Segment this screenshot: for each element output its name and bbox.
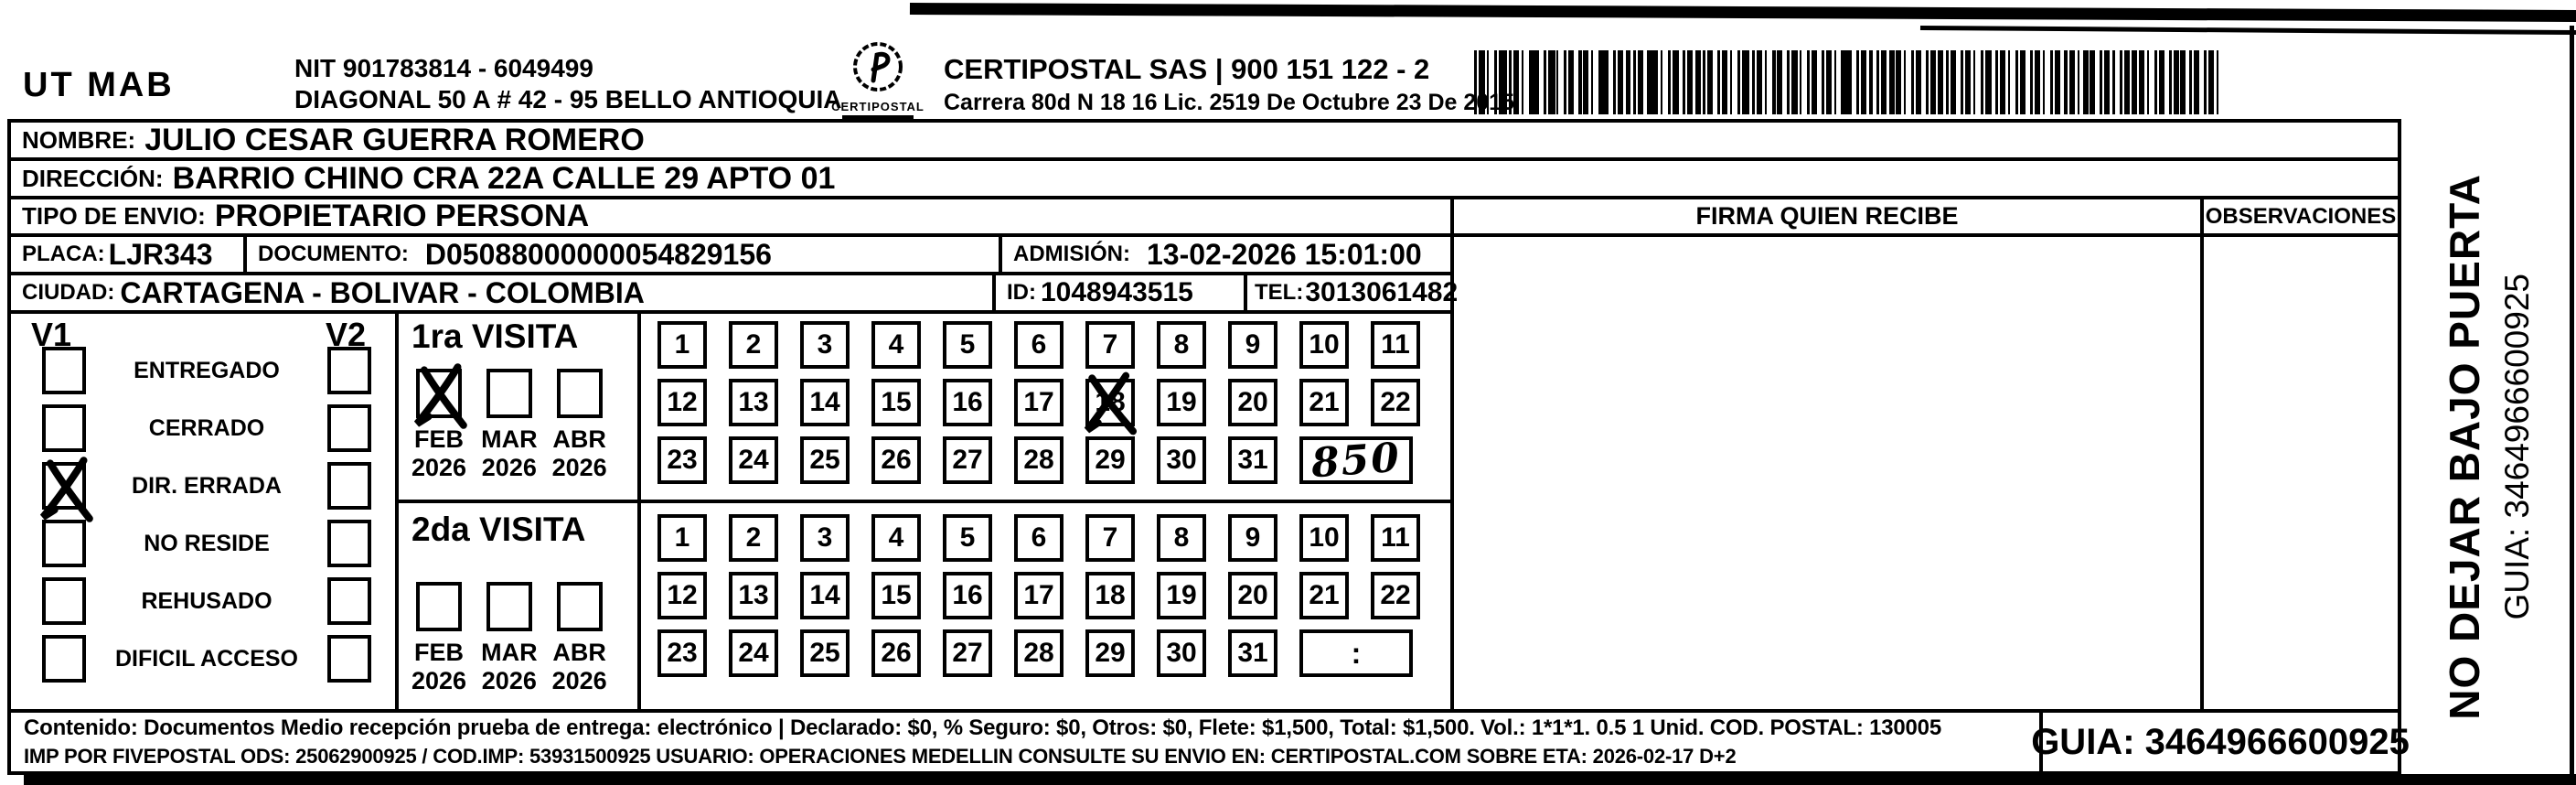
visit1-day-29[interactable]: 29: [1085, 436, 1135, 484]
visit1-note-box[interactable]: 850: [1299, 436, 1413, 484]
status-row-entregado: ENTREGADO: [11, 347, 395, 394]
month-year: 2026: [482, 667, 537, 695]
handwritten-x-icon: [1082, 373, 1138, 434]
month-year: 2026: [412, 667, 466, 695]
day-number: 22: [1380, 580, 1410, 611]
visit2-day-4[interactable]: 4: [871, 514, 921, 562]
visit1-day-16[interactable]: 16: [943, 379, 992, 426]
visit1-checkbox-feb[interactable]: [416, 369, 462, 418]
day-number: 2: [746, 329, 762, 360]
handwritten-note: 850: [1309, 434, 1402, 487]
status-options: ENTREGADOCERRADODIR. ERRADANO RESIDEREHU…: [11, 347, 395, 693]
v1-checkbox-no-reside[interactable]: [42, 520, 86, 567]
certipostal-logo-icon: [848, 40, 908, 97]
status-option-label: DIFICIL ACCESO: [86, 646, 327, 672]
day-number: 27: [952, 638, 982, 669]
sender-address: DIAGONAL 50 A # 42 - 95 BELLO ANTIOQUIA: [294, 84, 841, 115]
company-name: CERTIPOSTAL SAS | 900 151 122 - 2: [944, 53, 1514, 86]
admision-value: 13-02-2026 15:01:00: [1147, 238, 1422, 272]
visit2-day-9[interactable]: 9: [1228, 514, 1277, 562]
visit2-day-panel: 1234567891011121314151617181920212223242…: [637, 500, 1454, 713]
day-number: 20: [1237, 580, 1267, 611]
v1-checkbox-cerrado[interactable]: [42, 404, 86, 452]
day-number: 27: [952, 445, 982, 476]
v1-checkbox-dificil-acceso[interactable]: [42, 635, 86, 683]
scan-artifact-bottom: [24, 774, 2576, 785]
visit1-checkbox-mar[interactable]: [486, 369, 532, 418]
nit-line: NIT 901783814 - 6049499: [294, 53, 841, 84]
documento-value: D05088000000054829156: [425, 238, 772, 272]
day-number: 4: [889, 522, 904, 554]
placa-label: PLACA:: [22, 242, 105, 267]
day-number: 1: [675, 329, 690, 360]
visit2-day-3[interactable]: 3: [800, 514, 850, 562]
day-number: 20: [1237, 387, 1267, 418]
visit2-day-19[interactable]: 19: [1157, 572, 1206, 619]
guia-box: GUIA: 3464966600925: [2039, 709, 2401, 775]
visit1-day-grid: 1234567891011121314151617181920212223242…: [657, 321, 1420, 494]
visit1-day-4[interactable]: 4: [871, 321, 921, 369]
month-year: 2026: [412, 454, 466, 482]
side-note: NO DEJAR BAJO PUERTA GUIA: 3464966600925: [2407, 119, 2570, 774]
day-number: 9: [1245, 329, 1261, 360]
origin-code: UT MAB: [23, 66, 175, 105]
visit1-day-14[interactable]: 14: [800, 379, 850, 426]
v2-checkbox-no-reside[interactable]: [327, 520, 371, 567]
v1-checkbox-rehusado[interactable]: [42, 577, 86, 625]
sender-info: NIT 901783814 - 6049499 DIAGONAL 50 A # …: [294, 53, 841, 115]
admision-cell: ADMISIÓN: 13-02-2026 15:01:00: [999, 233, 1454, 275]
visit1-day-31[interactable]: 31: [1228, 436, 1277, 484]
id-value: 1048943515: [1041, 277, 1193, 308]
status-option-label: REHUSADO: [86, 588, 327, 615]
day-number: 22: [1380, 387, 1410, 418]
visit2-month-feb: FEB2026: [412, 582, 466, 695]
v2-checkbox-dir-errada[interactable]: [327, 462, 371, 510]
id-label: ID:: [1007, 280, 1036, 306]
day-row: 1234567891011: [657, 321, 1420, 369]
status-option-label: NO RESIDE: [86, 531, 327, 557]
nombre-value: JULIO CESAR GUERRA ROMERO: [144, 123, 645, 158]
tipo-envio-value: PROPIETARIO PERSONA: [215, 199, 589, 234]
visit1-months: FEB2026MAR2026ABR2026: [412, 369, 607, 482]
visit1-day-7[interactable]: 7: [1085, 321, 1135, 369]
visit1-day-24[interactable]: 24: [729, 436, 778, 484]
status-row-no-reside: NO RESIDE: [11, 520, 395, 567]
scan-artifact-top: [910, 3, 2576, 22]
day-number: 23: [667, 445, 697, 476]
day-number: 16: [952, 580, 982, 611]
day-number: 5: [960, 329, 976, 360]
day-number: 25: [809, 638, 839, 669]
month-name: MAR: [481, 639, 538, 667]
visit1-day-28[interactable]: 28: [1014, 436, 1064, 484]
visit2-month-mar: MAR2026: [481, 582, 538, 695]
day-number: 10: [1309, 329, 1339, 360]
visit1-day-25[interactable]: 25: [800, 436, 850, 484]
day-number: 11: [1381, 522, 1410, 554]
visit1-day-6[interactable]: 6: [1014, 321, 1064, 369]
visit1-month-panel: 1ra VISITA FEB2026MAR2026ABR2026: [395, 310, 641, 503]
footer-line2: IMP POR FIVEPOSTAL ODS: 25062900925 / CO…: [24, 745, 1736, 769]
certipostal-logo: CERTIPOSTAL: [823, 40, 933, 119]
day-number: 12: [667, 580, 697, 611]
side-warning-text: NO DEJAR BAJO PUERTA: [2440, 174, 2489, 720]
day-number: 18: [1095, 580, 1125, 611]
visit2-day-25[interactable]: 25: [800, 629, 850, 677]
day-number: 13: [738, 387, 768, 418]
visit2-day-27[interactable]: 27: [943, 629, 992, 677]
day-number: 7: [1103, 329, 1118, 360]
visit1-month-feb: FEB2026: [412, 369, 466, 482]
visit1-day-13[interactable]: 13: [729, 379, 778, 426]
visit1-day-18[interactable]: 18: [1085, 379, 1135, 426]
nombre-row: NOMBRE: JULIO CESAR GUERRA ROMERO: [7, 119, 2401, 161]
visit2-day-29[interactable]: 29: [1085, 629, 1135, 677]
handwritten-x-icon: [37, 457, 98, 522]
day-number: 19: [1166, 387, 1196, 418]
day-number: 26: [881, 638, 911, 669]
tel-value: 3013061482: [1305, 277, 1458, 308]
visit1-month-mar: MAR2026: [481, 369, 538, 482]
visit2-day-10[interactable]: 10: [1299, 514, 1349, 562]
visit1-day-3[interactable]: 3: [800, 321, 850, 369]
visit2-day-21[interactable]: 21: [1299, 572, 1349, 619]
visit2-time-box[interactable]: :: [1299, 629, 1413, 677]
handwritten-x-icon: [412, 364, 472, 428]
day-number: 1: [675, 522, 690, 554]
visit2-day-2[interactable]: 2: [729, 514, 778, 562]
day-row: 232425262728293031:: [657, 629, 1420, 677]
v1-checkbox-entregado[interactable]: [42, 347, 86, 394]
waybill-scan: UT MAB NIT 901783814 - 6049499 DIAGONAL …: [0, 0, 2576, 785]
day-row: 1213141516171819202122: [657, 572, 1420, 619]
day-row: 232425262728293031850: [657, 436, 1420, 484]
firma-header: FIRMA QUIEN RECIBE: [1450, 196, 2204, 237]
day-number: 13: [738, 580, 768, 611]
day-number: 14: [809, 580, 839, 611]
day-number: 24: [738, 638, 768, 669]
day-number: 14: [809, 387, 839, 418]
visit1-day-2[interactable]: 2: [729, 321, 778, 369]
day-number: 3: [818, 329, 833, 360]
visit2-month-panel: 2da VISITA FEB2026MAR2026ABR2026: [395, 500, 641, 713]
day-number: 8: [1174, 522, 1190, 554]
day-number: 19: [1166, 580, 1196, 611]
visit1-day-5[interactable]: 5: [943, 321, 992, 369]
direccion-label: DIRECCIÓN:: [22, 165, 164, 193]
visit1-day-15[interactable]: 15: [871, 379, 921, 426]
visit2-months: FEB2026MAR2026ABR2026: [412, 582, 607, 695]
visit1-day-21[interactable]: 21: [1299, 379, 1349, 426]
logo-text: CERTIPOSTAL: [823, 100, 933, 113]
day-number: 29: [1095, 445, 1125, 476]
time-separator: :: [1352, 637, 1362, 671]
v2-checkbox-dificil-acceso[interactable]: [327, 635, 371, 683]
visit2-checkbox-feb[interactable]: [416, 582, 462, 631]
visit2-day-11[interactable]: 11: [1371, 514, 1420, 562]
status-option-label: CERRADO: [86, 415, 327, 442]
visit2-day-31[interactable]: 31: [1228, 629, 1277, 677]
visit2-day-17[interactable]: 17: [1014, 572, 1064, 619]
day-number: 17: [1023, 387, 1053, 418]
day-row: 1234567891011: [657, 514, 1420, 562]
day-number: 8: [1174, 329, 1190, 360]
visit1-day-26[interactable]: 26: [871, 436, 921, 484]
day-number: 11: [1381, 329, 1410, 360]
visit1-checkbox-abr[interactable]: [557, 369, 603, 418]
nombre-label: NOMBRE:: [22, 126, 135, 155]
visit2-day-8[interactable]: 8: [1157, 514, 1206, 562]
status-row-cerrado: CERRADO: [11, 404, 395, 452]
tel-cell: TEL: 3013061482: [1244, 272, 1454, 314]
day-number: 29: [1095, 638, 1125, 669]
firma-signature-area[interactable]: [1450, 233, 2204, 713]
day-number: 28: [1023, 638, 1053, 669]
day-number: 24: [738, 445, 768, 476]
day-number: 30: [1166, 638, 1196, 669]
tel-label: TEL:: [1255, 280, 1303, 306]
visit1-day-20[interactable]: 20: [1228, 379, 1277, 426]
visit1-day-27[interactable]: 27: [943, 436, 992, 484]
day-number: 7: [1103, 522, 1118, 554]
day-number: 26: [881, 445, 911, 476]
tipo-envio-label: TIPO DE ENVIO:: [22, 202, 206, 231]
visit2-day-28[interactable]: 28: [1014, 629, 1064, 677]
day-number: 31: [1237, 445, 1267, 476]
status-option-label: DIR. ERRADA: [86, 473, 327, 500]
visit1-day-22[interactable]: 22: [1371, 379, 1420, 426]
status-row-dificil-acceso: DIFICIL ACCESO: [11, 635, 395, 683]
observaciones-area[interactable]: [2200, 233, 2401, 713]
day-number: 2: [746, 522, 762, 554]
month-year: 2026: [552, 454, 607, 482]
visit1-day-panel: 1234567891011121314151617181920212223242…: [637, 310, 1454, 503]
status-row-dir-errada: DIR. ERRADA: [11, 462, 395, 510]
visit1-day-19[interactable]: 19: [1157, 379, 1206, 426]
month-name: ABR: [552, 639, 606, 667]
day-number: 17: [1023, 580, 1053, 611]
visit1-month-abr: ABR2026: [552, 369, 607, 482]
visit1-day-9[interactable]: 9: [1228, 321, 1277, 369]
month-name: ABR: [552, 425, 606, 454]
visit2-day-20[interactable]: 20: [1228, 572, 1277, 619]
id-cell: ID: 1048943515: [992, 272, 1247, 314]
visit2-day-24[interactable]: 24: [729, 629, 778, 677]
visit1-day-12[interactable]: 12: [657, 379, 707, 426]
day-number: 3: [818, 522, 833, 554]
visit2-month-abr: ABR2026: [552, 582, 607, 695]
footer-details: Contenido: Documentos Medio recepción pr…: [7, 709, 2043, 775]
day-number: 6: [1031, 329, 1047, 360]
visit1-day-1[interactable]: 1: [657, 321, 707, 369]
scan-artifact-top-thin: [1920, 26, 2576, 35]
day-number: 23: [667, 638, 697, 669]
month-name: FEB: [414, 639, 464, 667]
day-number: 25: [809, 445, 839, 476]
v1-checkbox-dir-errada[interactable]: [42, 462, 86, 510]
footer-line1: Contenido: Documentos Medio recepción pr…: [24, 715, 1941, 741]
ciudad-cell: CIUDAD: CARTAGENA - BOLIVAR - COLOMBIA: [7, 272, 996, 314]
documento-label: DOCUMENTO:: [258, 242, 409, 267]
day-number: 21: [1309, 387, 1339, 418]
visit2-day-22[interactable]: 22: [1371, 572, 1420, 619]
visit1-day-17[interactable]: 17: [1014, 379, 1064, 426]
visit2-day-13[interactable]: 13: [729, 572, 778, 619]
admision-label: ADMISIÓN:: [1013, 242, 1130, 267]
visit1-day-10[interactable]: 10: [1299, 321, 1349, 369]
scan-artifact-right-edge: [2570, 26, 2574, 778]
day-number: 31: [1237, 638, 1267, 669]
observaciones-header: OBSERVACIONES: [2200, 196, 2401, 237]
visit1-day-11[interactable]: 11: [1371, 321, 1420, 369]
v2-checkbox-rehusado[interactable]: [327, 577, 371, 625]
status-option-label: ENTREGADO: [86, 358, 327, 384]
month-year: 2026: [552, 667, 607, 695]
visit2-checkbox-abr[interactable]: [557, 582, 603, 631]
visit2-checkbox-mar[interactable]: [486, 582, 532, 631]
visit2-day-14[interactable]: 14: [800, 572, 850, 619]
visit1-day-30[interactable]: 30: [1157, 436, 1206, 484]
visit2-day-16[interactable]: 16: [943, 572, 992, 619]
tipo-envio-row: TIPO DE ENVIO: PROPIETARIO PERSONA: [7, 196, 1454, 237]
day-number: 21: [1309, 580, 1339, 611]
visit2-day-7[interactable]: 7: [1085, 514, 1135, 562]
visit2-day-30[interactable]: 30: [1157, 629, 1206, 677]
visit2-day-15[interactable]: 15: [871, 572, 921, 619]
visit2-day-6[interactable]: 6: [1014, 514, 1064, 562]
visit2-title: 2da VISITA: [412, 511, 586, 549]
day-number: 12: [667, 387, 697, 418]
visit2-day-1[interactable]: 1: [657, 514, 707, 562]
company-license: Carrera 80d N 18 16 Lic. 2519 De Octubre…: [944, 90, 1514, 116]
visit2-day-5[interactable]: 5: [943, 514, 992, 562]
day-row: 1213141516171819202122: [657, 379, 1420, 426]
placa-value: LJR343: [109, 238, 213, 272]
day-number: 15: [881, 387, 911, 418]
direccion-value: BARRIO CHINO CRA 22A CALLE 29 APTO 01: [173, 161, 836, 197]
barcode: [1474, 50, 2224, 114]
visit1-title: 1ra VISITA: [412, 317, 578, 356]
visit2-day-grid: 1234567891011121314151617181920212223242…: [657, 514, 1420, 687]
company-info: CERTIPOSTAL SAS | 900 151 122 - 2 Carrer…: [944, 53, 1514, 116]
month-year: 2026: [482, 454, 537, 482]
day-number: 15: [881, 580, 911, 611]
placa-cell: PLACA: LJR343: [7, 233, 247, 275]
v2-checkbox-entregado[interactable]: [327, 347, 371, 394]
side-guia-text: GUIA: 3464966600925: [2498, 274, 2537, 620]
v2-checkbox-cerrado[interactable]: [327, 404, 371, 452]
day-number: 4: [889, 329, 904, 360]
visit2-day-12[interactable]: 12: [657, 572, 707, 619]
day-number: 16: [952, 387, 982, 418]
visit1-day-23[interactable]: 23: [657, 436, 707, 484]
month-name: MAR: [481, 425, 538, 454]
day-number: 6: [1031, 522, 1047, 554]
visit2-day-26[interactable]: 26: [871, 629, 921, 677]
day-number: 5: [960, 522, 976, 554]
direccion-row: DIRECCIÓN: BARRIO CHINO CRA 22A CALLE 29…: [7, 157, 2401, 199]
visit1-day-8[interactable]: 8: [1157, 321, 1206, 369]
day-number: 9: [1245, 522, 1261, 554]
ciudad-value: CARTAGENA - BOLIVAR - COLOMBIA: [120, 276, 645, 310]
status-panel: V1 V2 ENTREGADOCERRADODIR. ERRADANO RESI…: [7, 310, 399, 713]
month-name: FEB: [414, 425, 464, 454]
visit2-day-18[interactable]: 18: [1085, 572, 1135, 619]
day-number: 28: [1023, 445, 1053, 476]
day-number: 30: [1166, 445, 1196, 476]
ciudad-label: CIUDAD:: [22, 280, 114, 306]
status-row-rehusado: REHUSADO: [11, 577, 395, 625]
visit2-day-23[interactable]: 23: [657, 629, 707, 677]
documento-cell: DOCUMENTO: D05088000000054829156: [243, 233, 1002, 275]
day-number: 10: [1309, 522, 1339, 554]
